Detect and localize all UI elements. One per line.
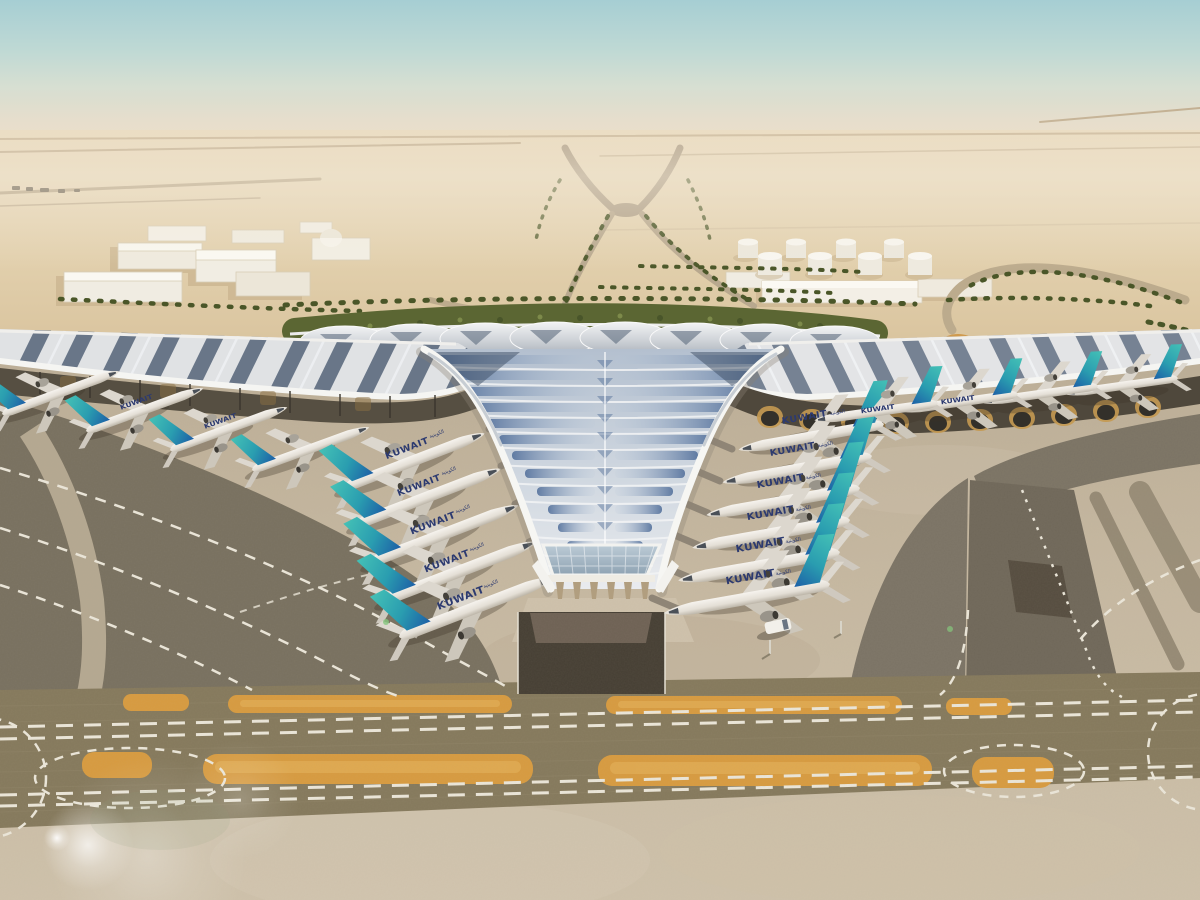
atmospheric-haze: [0, 100, 1200, 270]
flare-green-dot: [947, 626, 953, 632]
airport-aerial-rendering: KUWAIT KUWAIT KUWAIT KUWAIT KUWAIT KUWAI…: [0, 0, 1200, 900]
flare-green-dot: [383, 619, 389, 625]
scene-canvas: KUWAIT KUWAIT KUWAIT KUWAIT KUWAIT KUWAI…: [0, 0, 1200, 900]
